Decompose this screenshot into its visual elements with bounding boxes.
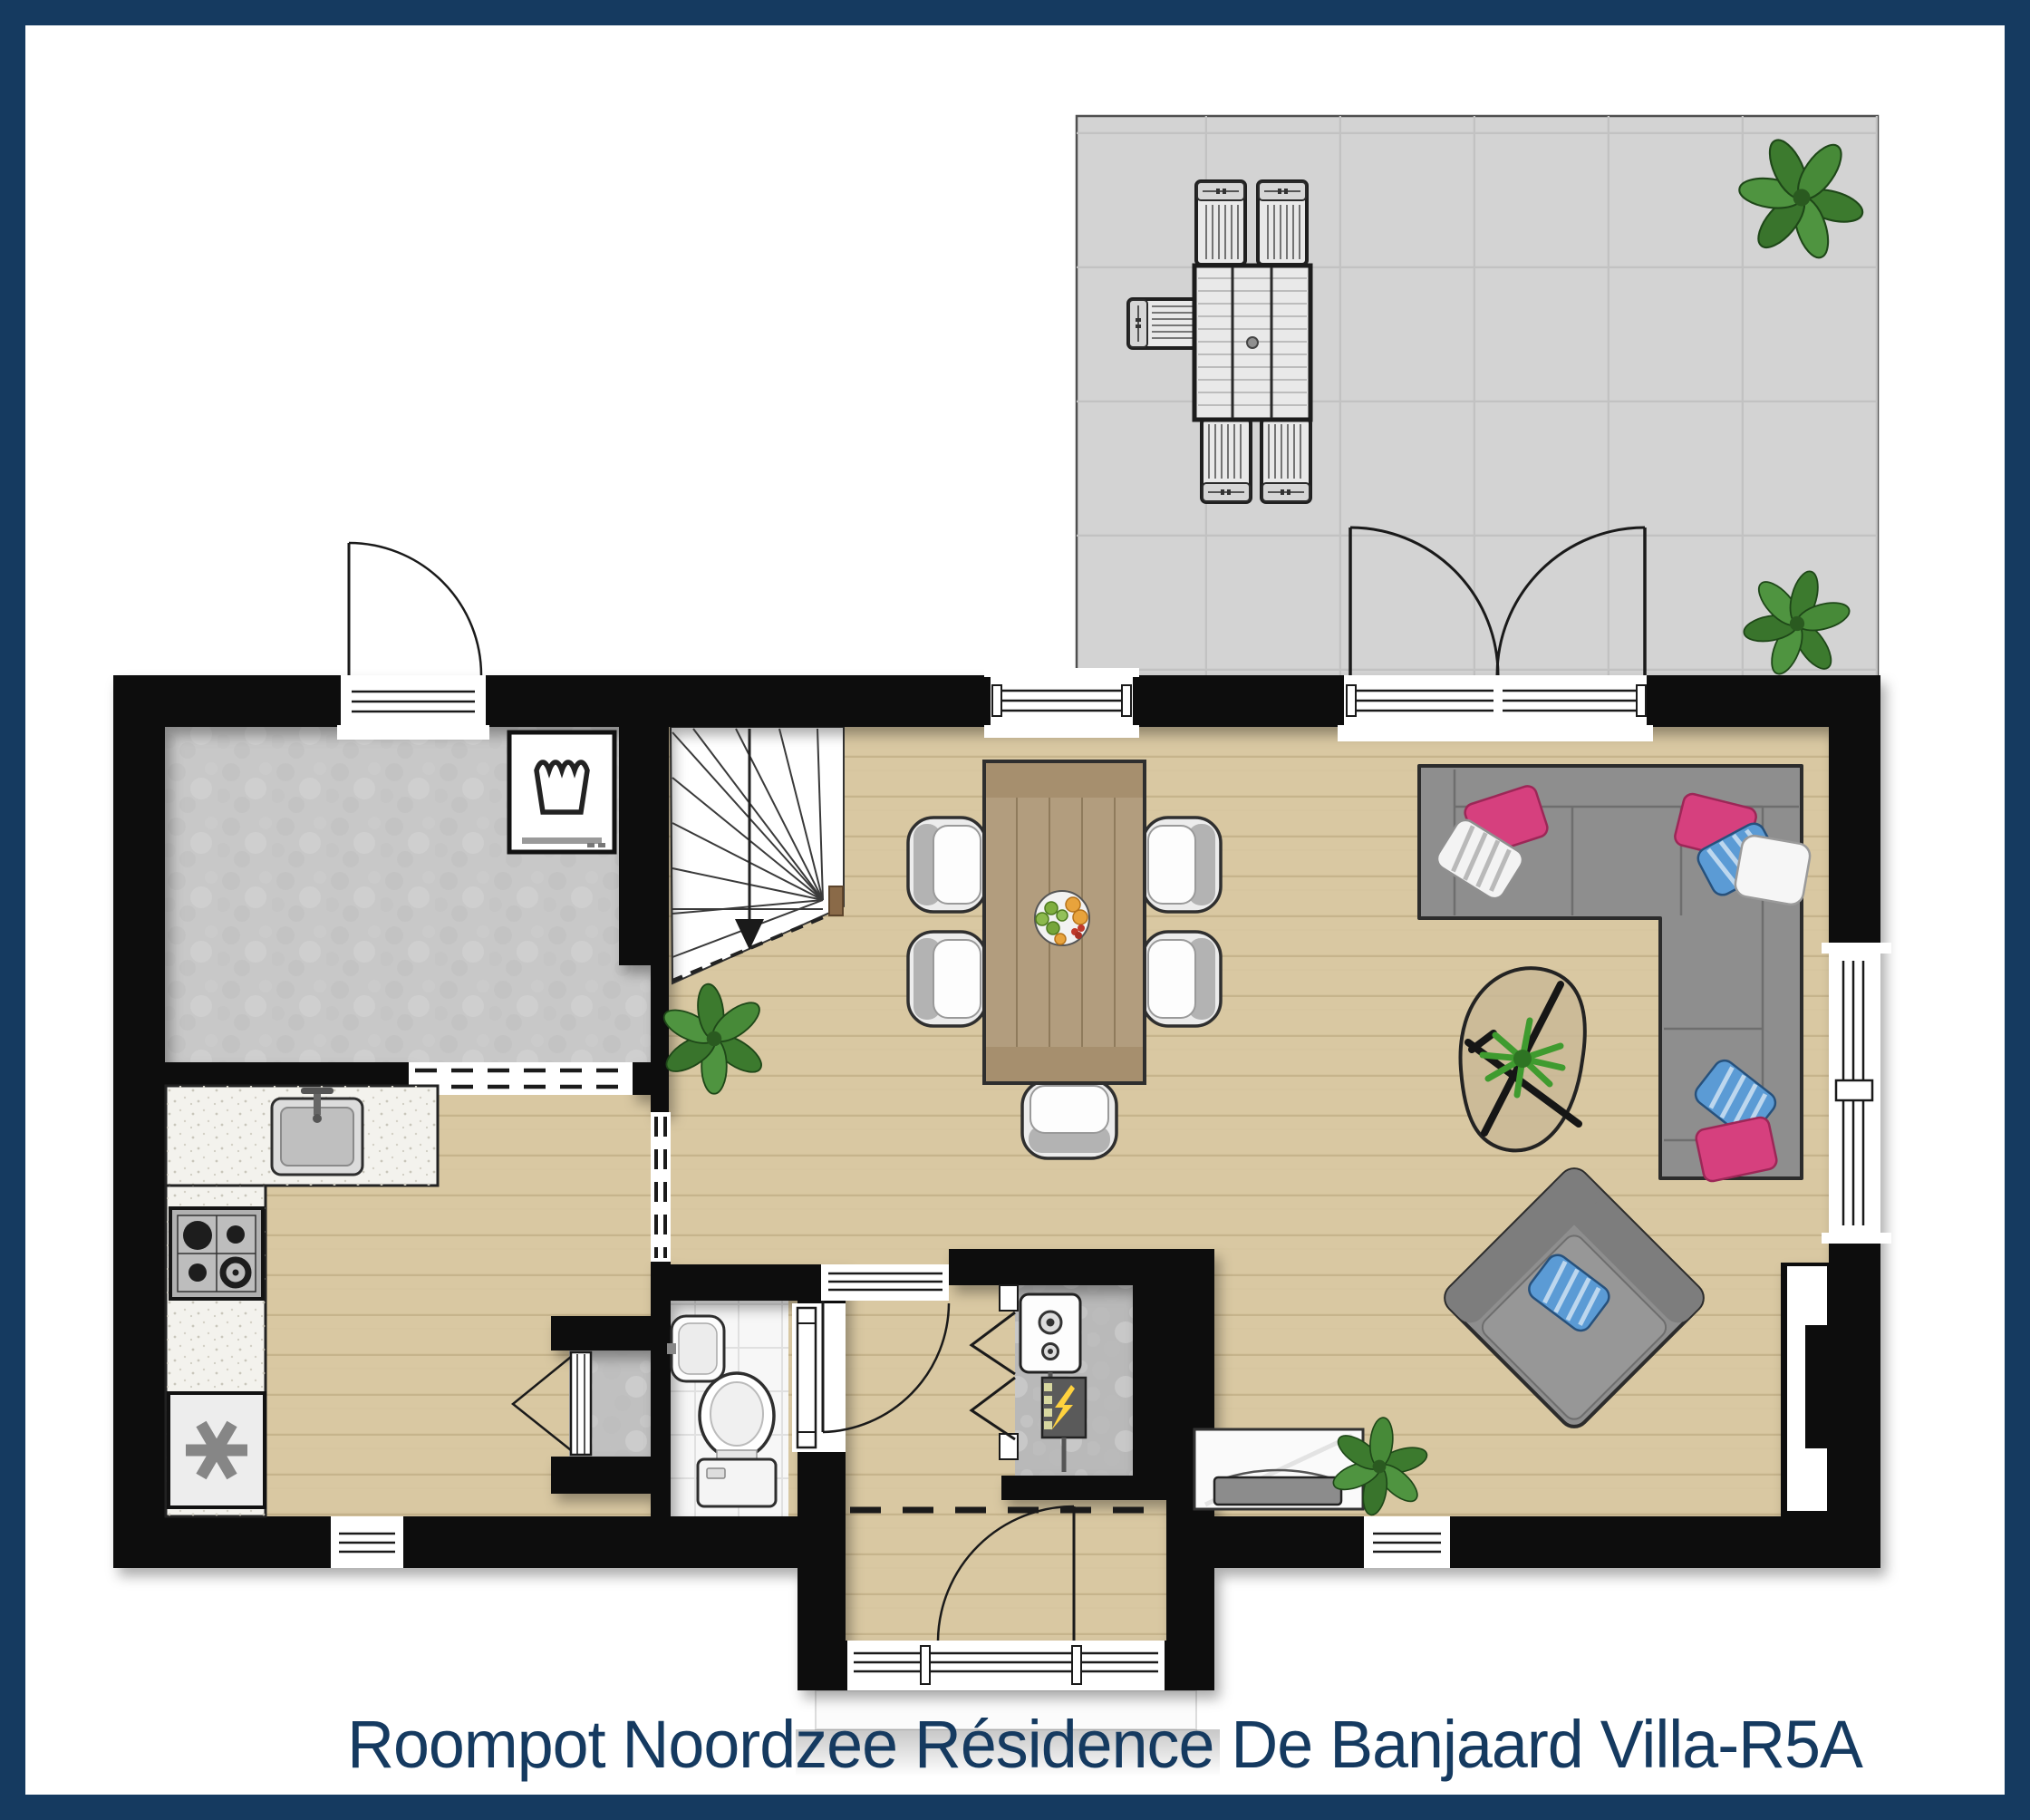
storage-closet-wall-bottom — [551, 1457, 671, 1494]
kitchen-sink — [272, 1088, 362, 1175]
terrace — [1077, 116, 1878, 702]
freezer — [169, 1393, 265, 1507]
tech-closet-wall-bottom — [1001, 1476, 1183, 1500]
plan-title: Roompot Noordzee Résidence De Banjaard V… — [244, 1706, 1965, 1783]
utility-wall-right — [619, 675, 669, 965]
toilet — [698, 1373, 776, 1506]
dining-chair-right-1 — [1143, 818, 1221, 912]
tap-icon — [667, 1343, 676, 1354]
dining-chair-left-1 — [908, 818, 986, 912]
tv — [1214, 1477, 1341, 1505]
stair-newel-post — [829, 886, 843, 915]
wall-bottom-left — [113, 1516, 797, 1568]
outdoor-table — [1194, 266, 1310, 420]
wall-bottom-right — [1214, 1516, 1880, 1568]
washing-machine — [509, 732, 614, 852]
kitchen-passage-dashed — [651, 1112, 671, 1262]
window-bottom-right — [1364, 1516, 1450, 1568]
dining-table — [984, 761, 1145, 1083]
back-door — [337, 543, 489, 740]
storage-closet-wall-top — [551, 1316, 671, 1350]
stove — [170, 1208, 263, 1299]
kitchen-divider-wall — [651, 963, 669, 1112]
utility-passage-dashed — [409, 1062, 633, 1095]
stove-burner — [183, 1221, 212, 1250]
window-bottom-left — [331, 1516, 403, 1568]
washbasin — [667, 1316, 724, 1381]
floor-plan-drawing — [0, 0, 2030, 1820]
fruit-bowl — [1035, 891, 1089, 945]
dining-chair-left-2 — [908, 932, 986, 1026]
floor-plan-canvas: Roompot Noordzee Résidence De Banjaard V… — [0, 0, 2030, 1820]
washing-machine-door-strip — [522, 837, 602, 844]
sofa-pillow-white — [1734, 834, 1812, 906]
dining-chair-right-2 — [1143, 932, 1221, 1026]
window-right — [1822, 943, 1891, 1244]
window-top — [984, 668, 1139, 738]
dining-chair-bottom — [1022, 1080, 1116, 1158]
wall-left — [113, 675, 165, 1568]
